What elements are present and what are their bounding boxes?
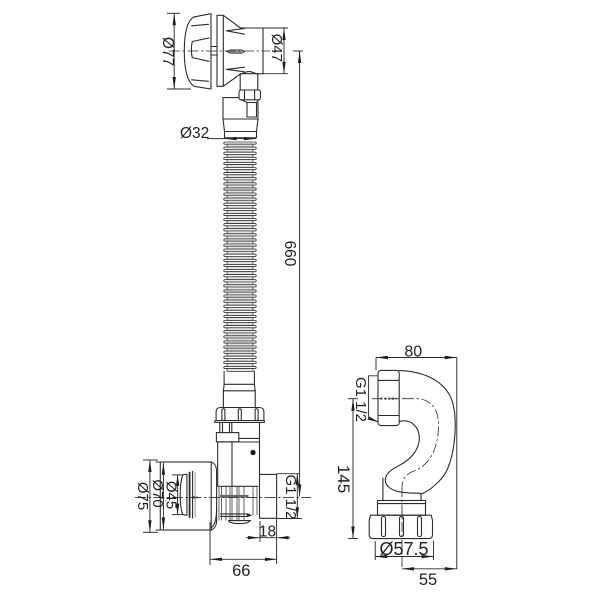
svg-text:Ø57.5: Ø57.5 — [379, 539, 428, 559]
svg-text:660: 660 — [281, 241, 298, 267]
svg-text:Ø32: Ø32 — [180, 125, 209, 142]
svg-text:Ø47: Ø47 — [268, 34, 285, 62]
svg-text:55: 55 — [419, 571, 437, 589]
svg-text:18: 18 — [259, 523, 276, 540]
svg-text:145: 145 — [334, 465, 353, 493]
svg-text:80: 80 — [404, 343, 422, 360]
svg-text:Ø45: Ø45 — [162, 481, 179, 509]
svg-text:66: 66 — [232, 562, 250, 580]
svg-text:G1 1/2: G1 1/2 — [282, 474, 299, 519]
svg-text:Ø77: Ø77 — [159, 37, 176, 66]
svg-text:Ø75: Ø75 — [134, 482, 151, 510]
svg-text:G1 1/2: G1 1/2 — [352, 377, 369, 422]
